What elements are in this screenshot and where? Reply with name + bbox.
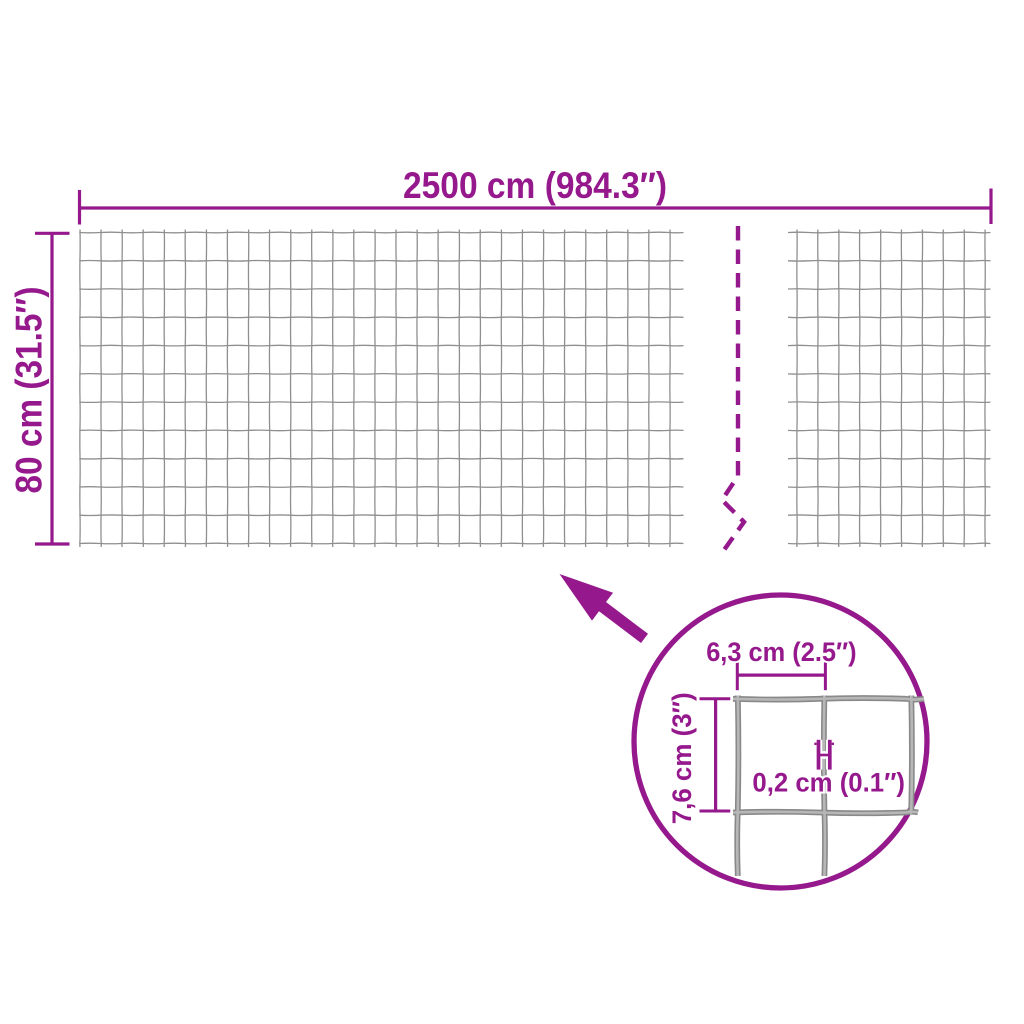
- svg-text:7,6 cm (3″): 7,6 cm (3″): [667, 692, 697, 824]
- svg-text:0,2 cm (0.1″): 0,2 cm (0.1″): [752, 768, 905, 798]
- svg-text:6,3 cm (2.5″): 6,3 cm (2.5″): [706, 637, 856, 667]
- svg-text:2500 cm (984.3″): 2500 cm (984.3″): [403, 165, 667, 206]
- svg-text:80 cm (31.5″): 80 cm (31.5″): [9, 287, 50, 494]
